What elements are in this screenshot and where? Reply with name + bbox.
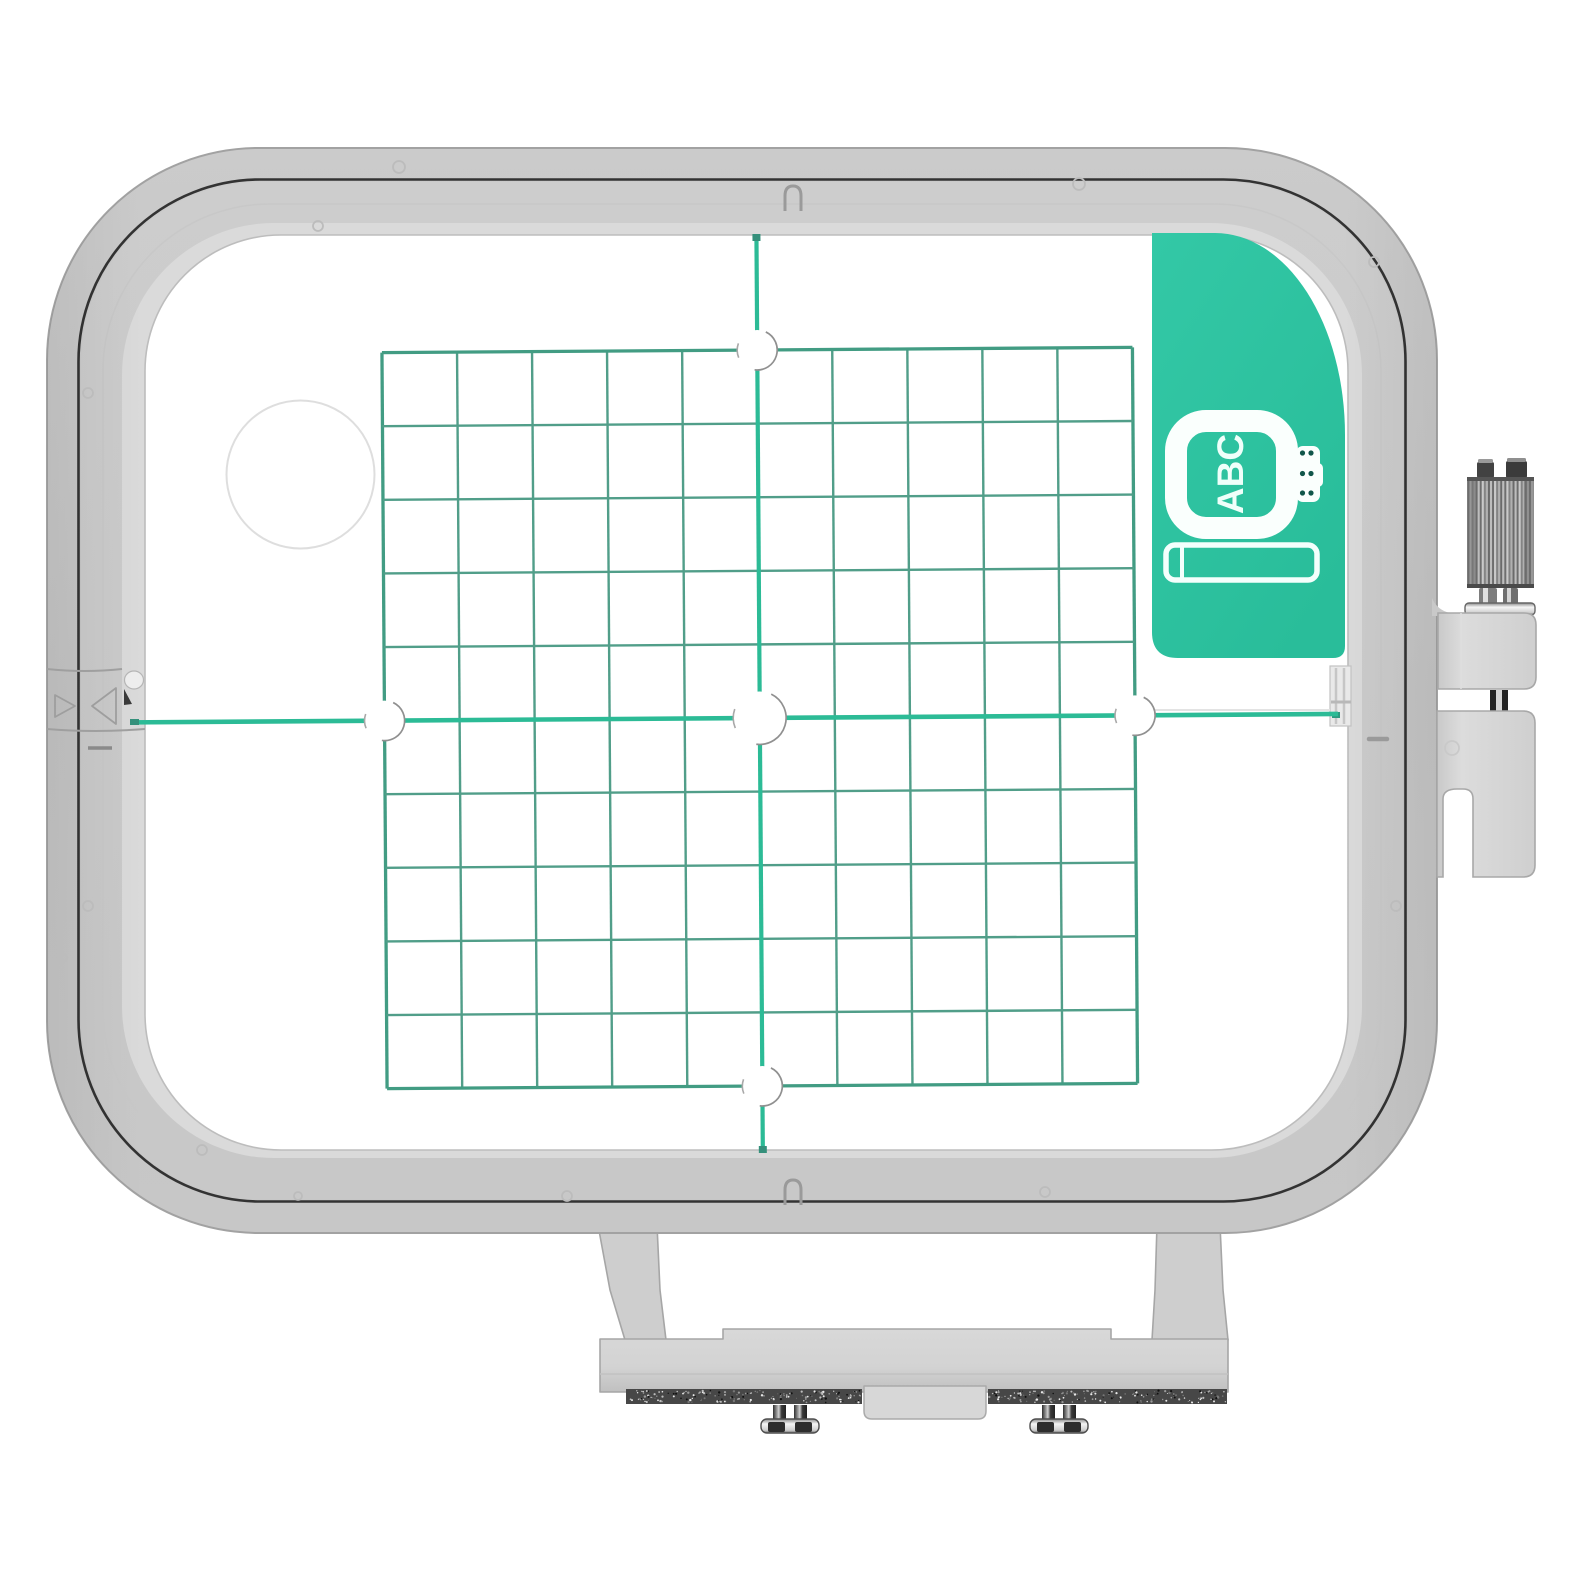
svg-text:ABC: ABC: [1210, 434, 1251, 514]
